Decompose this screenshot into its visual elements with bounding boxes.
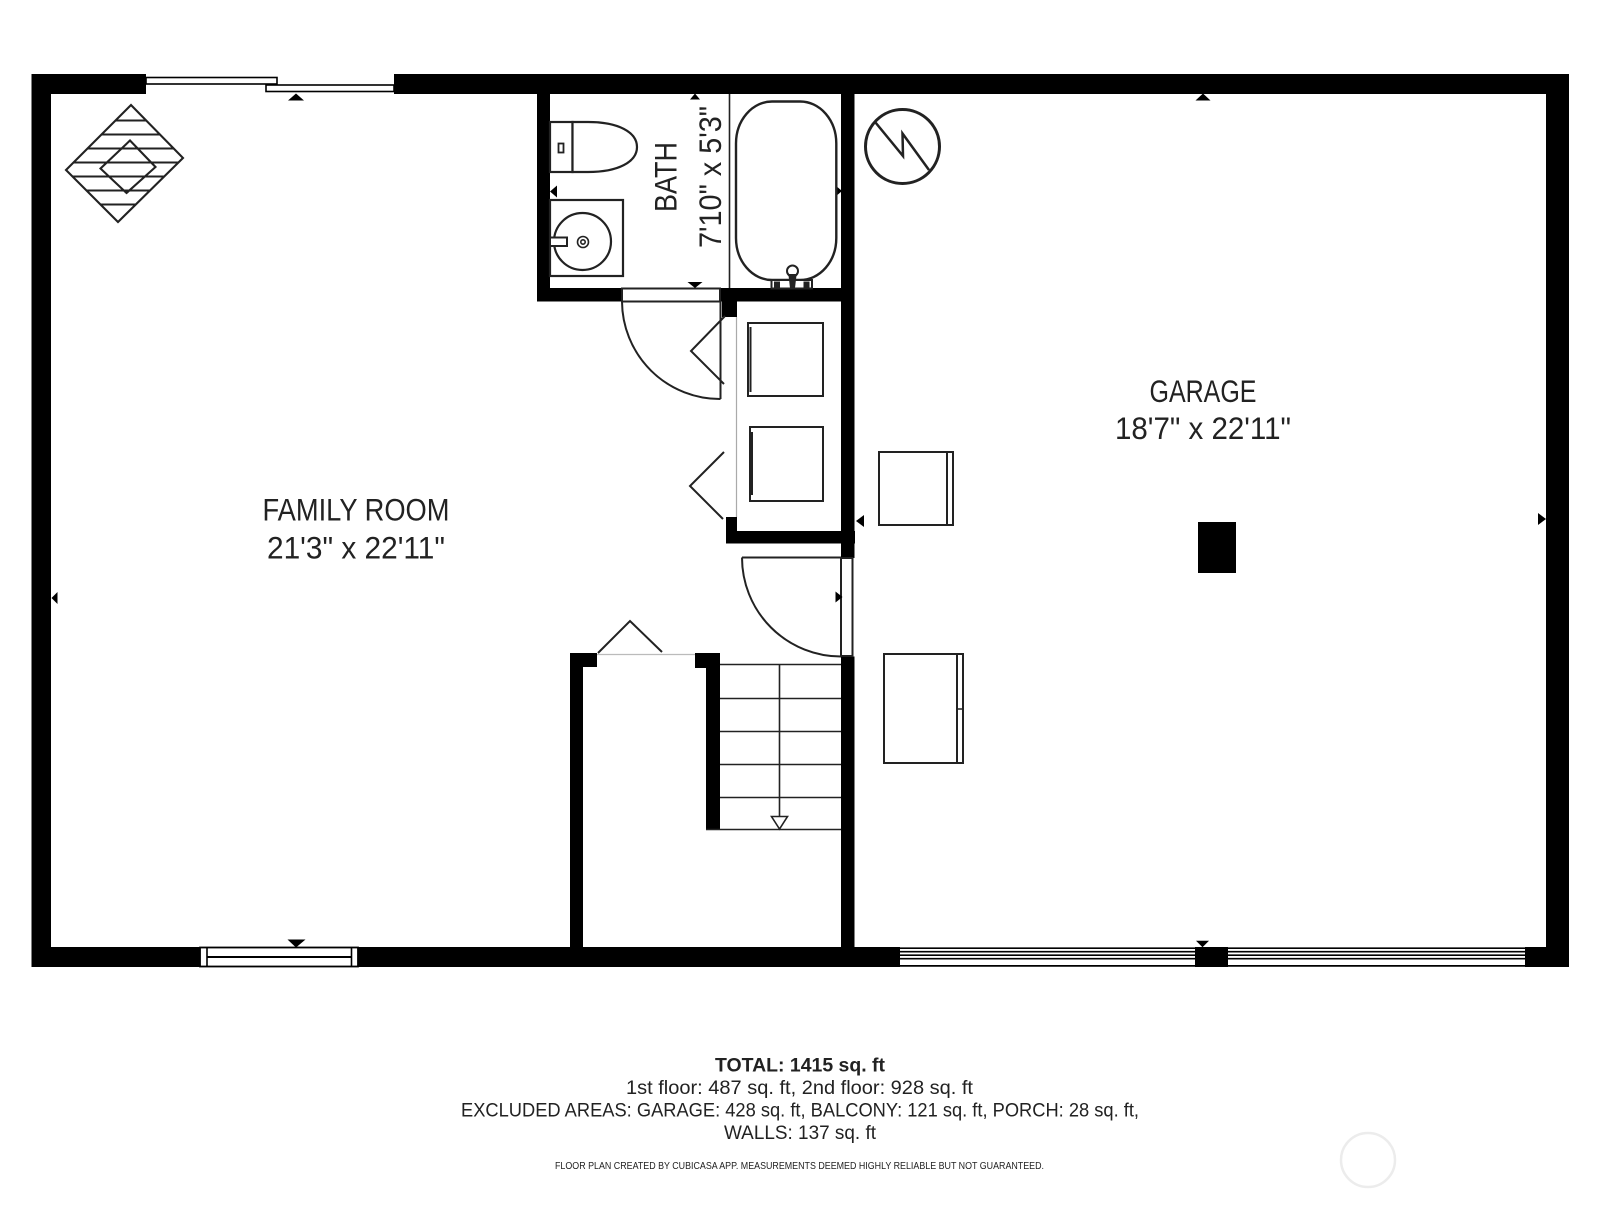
svg-text:FLOOR PLAN CREATED BY CUBICASA: FLOOR PLAN CREATED BY CUBICASA APP. MEAS… (555, 1161, 1044, 1172)
svg-text:1st floor: 487 sq. ft, 2nd flo: 1st floor: 487 sq. ft, 2nd floor: 928 sq… (626, 1078, 974, 1099)
svg-text:7'10" x 5'3": 7'10" x 5'3" (692, 106, 728, 248)
svg-text:18'7" x 22'11": 18'7" x 22'11" (1115, 410, 1291, 446)
svg-text:TOTAL: 1415 sq. ft: TOTAL: 1415 sq. ft (715, 1056, 886, 1077)
svg-text:21'3" x 22'11": 21'3" x 22'11" (267, 530, 445, 566)
svg-text:EXCLUDED AREAS: GARAGE: 428 sq: EXCLUDED AREAS: GARAGE: 428 sq. ft, BALC… (461, 1101, 1139, 1122)
svg-text:FAMILY ROOM: FAMILY ROOM (263, 492, 450, 528)
svg-text:WALLS: 137 sq. ft: WALLS: 137 sq. ft (724, 1123, 877, 1144)
svg-text:BATH: BATH (648, 142, 684, 212)
svg-text:GARAGE: GARAGE (1150, 373, 1257, 409)
